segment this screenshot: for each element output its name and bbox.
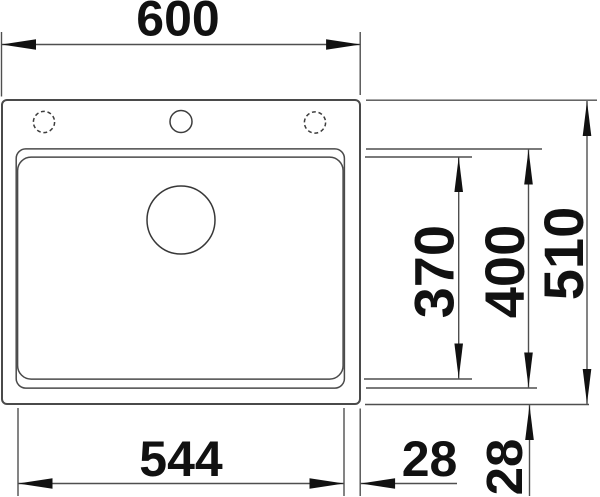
svg-text:28: 28 (402, 431, 458, 487)
svg-text:544: 544 (139, 431, 223, 487)
svg-text:370: 370 (403, 225, 466, 318)
svg-text:600: 600 (136, 0, 219, 47)
svg-text:28: 28 (476, 439, 533, 496)
svg-text:400: 400 (473, 225, 536, 318)
svg-text:510: 510 (532, 207, 595, 300)
